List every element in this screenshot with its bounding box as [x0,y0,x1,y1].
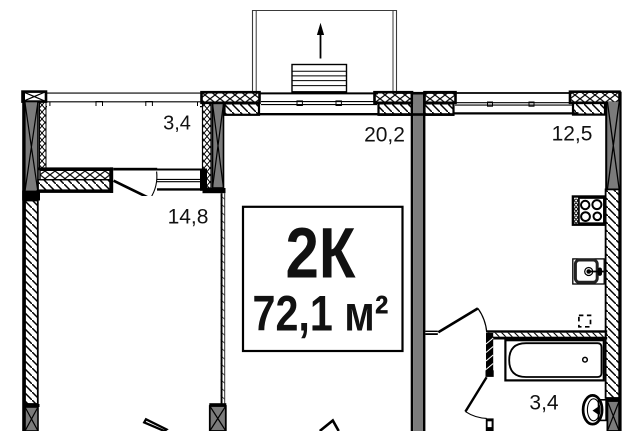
svg-text:20,2: 20,2 [364,124,405,147]
svg-text:12,5: 12,5 [552,123,593,146]
svg-text:14,8: 14,8 [168,206,209,229]
svg-text:72,1 м²: 72,1 м² [253,286,389,342]
svg-text:2К: 2К [286,215,357,294]
svg-text:3,4: 3,4 [529,392,559,415]
svg-text:3,4: 3,4 [163,113,191,135]
